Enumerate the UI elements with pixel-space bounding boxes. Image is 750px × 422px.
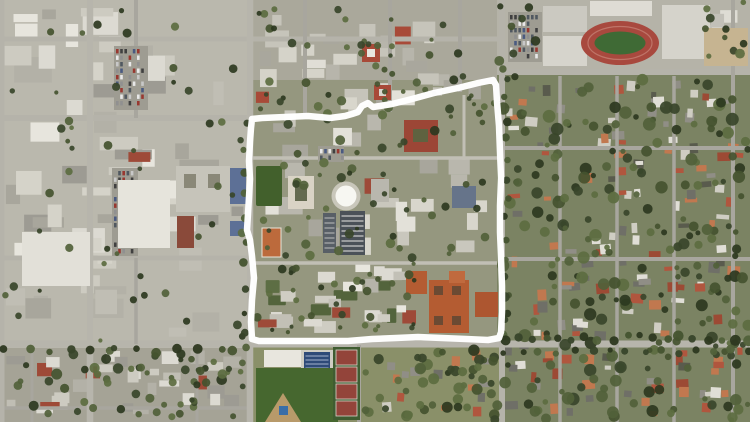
building <box>395 27 411 45</box>
tree <box>185 87 193 95</box>
tree <box>722 25 729 32</box>
building <box>285 163 305 178</box>
tree <box>662 306 669 313</box>
house <box>711 368 719 375</box>
street-tree <box>675 350 682 357</box>
tree <box>10 88 15 93</box>
house <box>649 251 661 258</box>
tree <box>426 51 434 59</box>
tree <box>706 316 712 322</box>
tree <box>45 377 54 386</box>
house <box>6 288 25 305</box>
tree <box>413 78 421 86</box>
tree <box>596 390 608 402</box>
tree <box>382 67 388 73</box>
tree <box>445 104 454 113</box>
tree <box>675 274 681 280</box>
parked-car <box>514 28 517 32</box>
tree <box>721 179 726 184</box>
tree <box>623 153 632 162</box>
tree <box>302 160 309 167</box>
tree <box>738 193 744 199</box>
street-tree <box>242 344 250 352</box>
tree <box>454 403 463 412</box>
tree <box>702 396 707 401</box>
tree <box>282 252 289 259</box>
house <box>508 126 519 131</box>
tree <box>640 294 646 300</box>
building <box>449 159 470 175</box>
tree <box>680 268 689 277</box>
tree <box>472 102 476 106</box>
tree <box>168 413 175 420</box>
tree <box>604 245 610 251</box>
street-tree <box>503 118 512 127</box>
tree <box>344 44 350 50</box>
parked-car <box>523 41 526 45</box>
tree <box>302 78 311 87</box>
tree <box>260 217 267 224</box>
tree <box>563 119 571 127</box>
tree <box>525 3 533 11</box>
tree <box>308 312 315 319</box>
parked-car <box>127 171 130 175</box>
tree <box>637 168 646 177</box>
building <box>260 51 271 66</box>
tree <box>374 42 381 49</box>
tree <box>521 110 527 116</box>
parked-car <box>124 95 127 99</box>
building <box>309 219 322 236</box>
house <box>678 223 689 228</box>
tree <box>564 256 573 265</box>
tree <box>481 103 488 110</box>
tree <box>202 378 210 386</box>
house <box>82 187 110 195</box>
tree <box>716 98 726 108</box>
tree <box>412 262 416 266</box>
tree <box>442 402 453 413</box>
tree <box>206 120 214 128</box>
parked-car <box>141 69 144 73</box>
tree <box>660 101 673 114</box>
orange-roof-complex <box>449 271 465 283</box>
tree <box>532 207 543 218</box>
tree <box>289 270 294 275</box>
tree <box>47 28 54 35</box>
auditorium-white-dome <box>336 186 357 207</box>
tree <box>674 265 679 270</box>
house <box>619 226 627 236</box>
tree <box>552 284 558 290</box>
building <box>128 370 139 382</box>
tree <box>619 106 631 118</box>
tree <box>397 143 402 148</box>
tree <box>294 150 302 158</box>
tree <box>586 297 595 306</box>
tennis-court <box>336 367 357 382</box>
tree <box>543 399 549 405</box>
street-tree <box>111 345 117 351</box>
tree <box>655 224 661 230</box>
tree <box>131 148 136 153</box>
house <box>62 166 87 183</box>
tree <box>488 380 495 387</box>
building <box>150 369 159 376</box>
building <box>402 371 409 378</box>
tree <box>655 385 665 395</box>
tree <box>113 363 123 373</box>
school-building <box>543 6 587 32</box>
house <box>721 390 728 397</box>
tree <box>290 325 294 329</box>
tree <box>94 371 101 378</box>
tree <box>729 152 737 160</box>
tree <box>389 43 395 49</box>
tree <box>372 62 379 69</box>
tree <box>80 30 86 36</box>
parked-car <box>141 82 144 86</box>
house <box>716 245 726 253</box>
tree <box>589 375 598 384</box>
tree <box>404 207 410 213</box>
tree <box>153 408 161 416</box>
tree <box>331 281 338 288</box>
house <box>95 290 117 314</box>
house <box>717 152 730 161</box>
tree <box>394 377 402 385</box>
street-tree <box>500 350 506 356</box>
house <box>48 205 62 228</box>
tree <box>214 182 222 190</box>
tree <box>260 10 268 18</box>
tree <box>726 113 739 126</box>
tree <box>699 320 705 326</box>
parked-car <box>527 35 530 39</box>
courtyard <box>434 286 443 295</box>
building <box>467 213 478 230</box>
tree <box>181 365 190 374</box>
street-tree <box>504 76 510 82</box>
building <box>54 392 69 403</box>
tree <box>666 246 674 254</box>
tree <box>620 149 625 154</box>
tree <box>481 233 490 242</box>
tree <box>37 228 42 233</box>
house <box>687 109 693 118</box>
tree <box>237 137 243 143</box>
tree <box>680 216 686 222</box>
street-tree <box>553 351 559 357</box>
house <box>81 8 113 16</box>
tree <box>519 220 530 231</box>
tree <box>239 360 246 367</box>
tree <box>299 181 308 190</box>
tree <box>80 398 88 406</box>
tree <box>314 102 323 111</box>
tree <box>549 298 557 306</box>
tree <box>574 186 583 195</box>
tree <box>284 120 293 129</box>
street-tree <box>730 335 741 346</box>
tree <box>540 227 550 237</box>
tree <box>349 285 356 292</box>
house <box>635 161 643 165</box>
tree <box>405 270 414 279</box>
street-tree <box>568 337 575 344</box>
street-tree <box>505 195 511 201</box>
tree <box>319 158 328 167</box>
tree <box>257 11 262 16</box>
tree <box>641 146 652 157</box>
tree <box>598 278 610 290</box>
tree <box>652 138 662 148</box>
house <box>193 312 220 331</box>
tree <box>589 229 601 241</box>
building <box>473 407 481 417</box>
street-tree <box>636 332 642 338</box>
street-tree <box>664 335 672 343</box>
tree <box>702 80 713 91</box>
tree <box>449 75 458 84</box>
street-tree <box>242 311 247 316</box>
parked-car <box>337 149 340 153</box>
tree <box>230 192 236 198</box>
tree <box>195 233 202 240</box>
tree <box>408 253 417 262</box>
tree <box>137 273 143 279</box>
tree <box>57 124 65 132</box>
tree <box>334 301 340 307</box>
tree <box>656 339 663 346</box>
tree <box>570 299 580 309</box>
street-tree <box>240 147 246 153</box>
parked-car <box>129 88 132 92</box>
parked-car <box>137 62 140 66</box>
tree <box>418 377 428 387</box>
parked-car <box>129 62 132 66</box>
tree <box>288 39 297 48</box>
tree <box>633 114 639 120</box>
street-tree <box>625 332 632 339</box>
tree <box>706 54 711 59</box>
tree <box>530 317 538 325</box>
school-building <box>662 5 710 59</box>
parked-car <box>129 56 132 60</box>
large-white-roof <box>22 232 90 286</box>
tree <box>98 338 102 342</box>
tree <box>638 264 647 273</box>
parked-car <box>133 49 136 53</box>
tree <box>527 383 537 393</box>
apartment-complex <box>176 166 230 212</box>
house <box>690 90 698 98</box>
parked-car <box>514 35 517 39</box>
tree <box>357 41 365 49</box>
tree <box>450 130 456 136</box>
tree <box>38 289 42 293</box>
large-white-roof <box>118 180 170 248</box>
tree <box>141 292 148 299</box>
parked-car <box>328 156 331 160</box>
parked-car <box>120 95 123 99</box>
house <box>169 328 187 337</box>
house <box>525 117 538 127</box>
house <box>567 408 573 416</box>
tree <box>494 56 504 66</box>
satellite-map <box>0 0 750 422</box>
parked-car <box>341 156 344 160</box>
parked-car <box>518 41 521 45</box>
tree <box>183 318 190 325</box>
building <box>210 394 220 405</box>
track-infield <box>595 32 646 55</box>
tree <box>65 117 73 125</box>
tree <box>585 216 592 223</box>
house <box>713 362 724 368</box>
street-tree <box>719 337 726 344</box>
house <box>641 398 649 406</box>
tree <box>229 64 238 73</box>
tree <box>505 362 511 368</box>
parked-car <box>114 210 117 214</box>
tree <box>694 181 703 190</box>
house <box>544 196 551 200</box>
tree <box>548 271 557 280</box>
tree <box>488 356 498 366</box>
tree <box>584 82 594 92</box>
gym-building <box>264 350 302 367</box>
tree <box>277 98 284 105</box>
parked-car <box>324 149 327 153</box>
parked-car <box>535 54 538 58</box>
tree <box>373 327 378 332</box>
tree <box>285 226 292 233</box>
tree <box>218 118 226 126</box>
tree <box>647 228 655 236</box>
tree <box>716 130 723 137</box>
street-tree <box>704 336 713 345</box>
house <box>13 14 37 22</box>
street-tree <box>504 157 510 163</box>
tree <box>591 191 598 198</box>
building <box>272 15 281 25</box>
parked-car <box>523 35 526 39</box>
house <box>695 283 705 291</box>
tree <box>238 369 244 375</box>
house <box>631 223 637 233</box>
street-tree <box>151 348 161 358</box>
tree <box>530 406 541 417</box>
house <box>128 152 150 162</box>
tree <box>702 224 713 235</box>
tree <box>578 251 590 263</box>
tree <box>81 366 89 374</box>
tree <box>136 411 142 417</box>
tree <box>388 53 392 57</box>
street-tree <box>86 346 95 355</box>
terracotta-court <box>262 228 281 257</box>
tree <box>655 181 667 193</box>
tree <box>606 350 618 362</box>
street-tree <box>593 336 602 345</box>
tree <box>18 378 24 384</box>
building <box>279 47 297 62</box>
tree <box>359 279 365 285</box>
parked-car <box>523 28 526 32</box>
tree <box>412 278 417 283</box>
parked-car <box>137 75 140 79</box>
parked-car <box>116 69 119 73</box>
tree <box>429 401 436 408</box>
tree <box>644 386 655 397</box>
street-tree <box>133 345 140 352</box>
tree <box>731 306 740 315</box>
tree <box>366 313 374 321</box>
house <box>505 401 518 410</box>
parked-car <box>514 41 517 45</box>
tree <box>514 178 523 187</box>
tree <box>608 192 620 204</box>
house <box>638 279 651 286</box>
tree <box>463 404 471 412</box>
tree <box>162 289 170 297</box>
tree <box>612 120 620 128</box>
tree <box>439 349 446 356</box>
tree <box>469 373 475 379</box>
tree <box>112 83 120 91</box>
house <box>560 285 572 289</box>
tree <box>378 110 387 119</box>
tree <box>117 405 125 413</box>
tree <box>635 84 640 89</box>
house <box>542 151 549 155</box>
tree <box>390 233 397 240</box>
tree <box>428 373 439 384</box>
tree <box>362 406 370 414</box>
tree <box>449 114 453 118</box>
tree <box>362 322 369 329</box>
house <box>619 261 626 266</box>
tree <box>472 384 483 395</box>
tree <box>665 354 672 361</box>
tree <box>209 221 215 227</box>
tree <box>171 23 179 31</box>
tree <box>578 172 590 184</box>
tree <box>375 81 381 87</box>
parked-car <box>141 88 144 92</box>
parking-lot <box>114 46 148 110</box>
tree <box>54 90 58 94</box>
tree <box>389 71 395 77</box>
tree <box>634 191 640 197</box>
tree <box>686 232 693 239</box>
tree <box>589 122 598 131</box>
building <box>6 356 25 364</box>
tree <box>545 143 550 148</box>
tree <box>735 49 745 59</box>
house <box>42 9 56 19</box>
tree <box>531 36 541 46</box>
parked-car <box>131 249 134 253</box>
tree <box>226 366 232 372</box>
tree <box>645 366 651 372</box>
tree <box>130 296 137 303</box>
parked-car <box>116 49 119 53</box>
parked-car <box>114 217 117 221</box>
house <box>39 45 56 68</box>
gray-tower-building <box>371 179 389 202</box>
